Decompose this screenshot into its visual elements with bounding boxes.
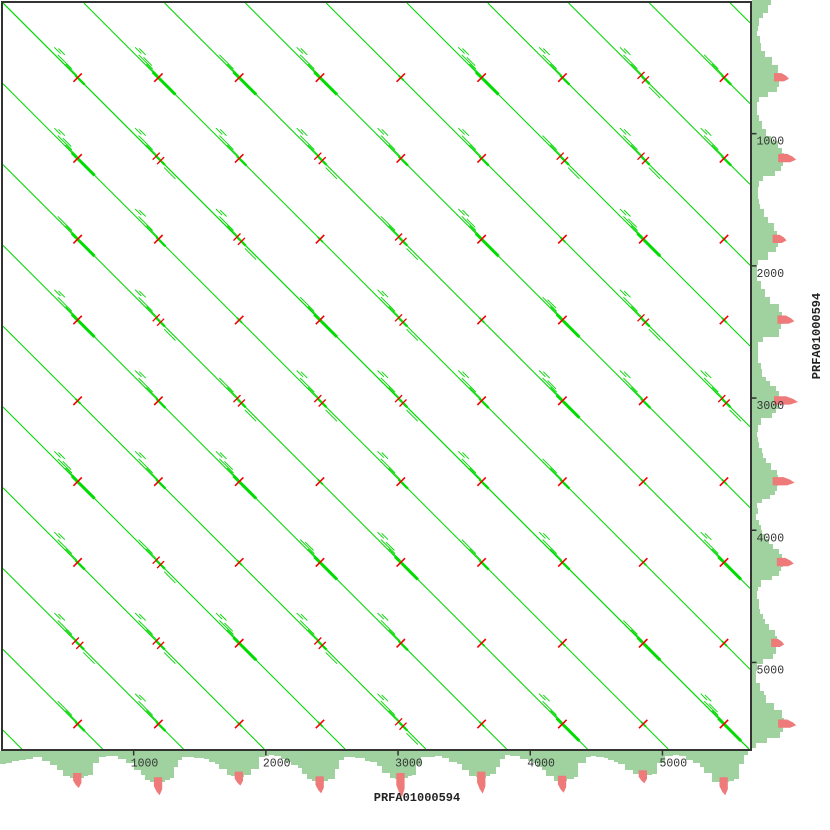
svg-text:3000: 3000 <box>757 400 785 413</box>
svg-text:PRFA01000594: PRFA01000594 <box>374 791 460 805</box>
svg-text:5000: 5000 <box>660 758 688 771</box>
svg-text:2000: 2000 <box>263 758 291 771</box>
svg-text:3000: 3000 <box>395 758 423 771</box>
svg-text:4000: 4000 <box>527 758 555 771</box>
svg-text:4000: 4000 <box>757 532 785 545</box>
svg-text:5000: 5000 <box>757 665 785 678</box>
svg-text:2000: 2000 <box>757 268 785 281</box>
svg-text:PRFA01000594: PRFA01000594 <box>810 293 824 379</box>
svg-text:1000: 1000 <box>131 758 159 771</box>
svg-text:1000: 1000 <box>757 136 785 149</box>
